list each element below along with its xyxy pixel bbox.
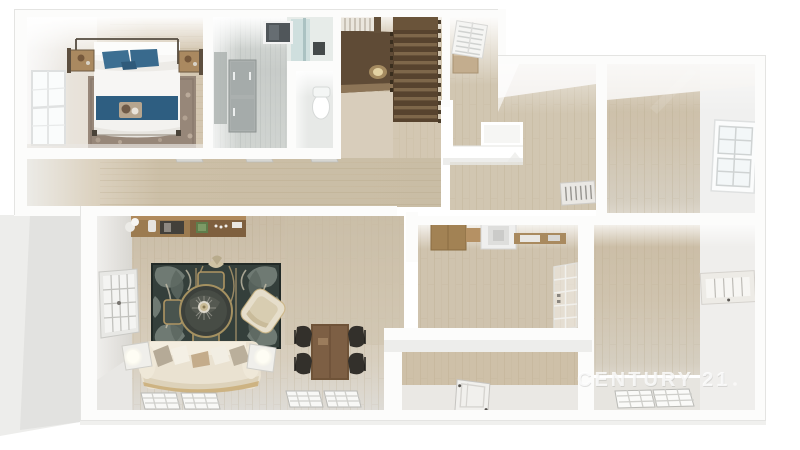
svg-text:CENTURY 21: CENTURY 21	[577, 369, 730, 391]
